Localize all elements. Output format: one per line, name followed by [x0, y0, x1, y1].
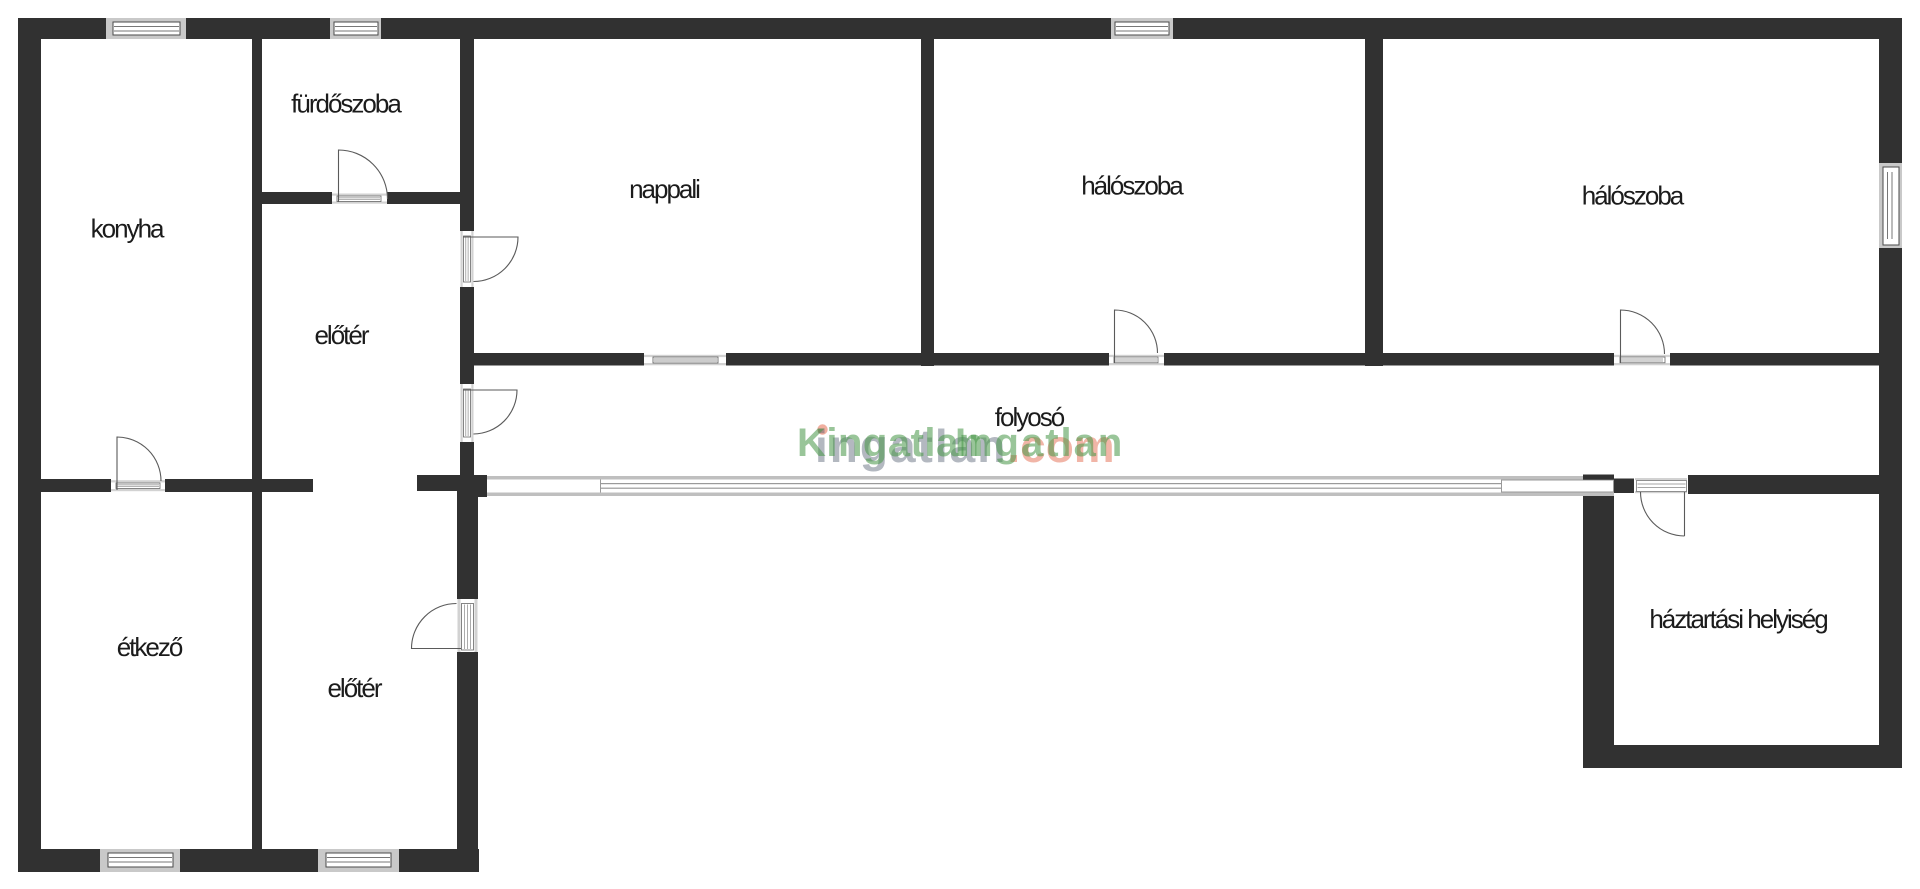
svg-text:előtér: előtér [327, 673, 382, 703]
svg-text:előtér: előtér [314, 320, 369, 350]
svg-text:folyosó: folyosó [995, 402, 1065, 432]
svg-text:háztartási helyiség: háztartási helyiség [1649, 604, 1827, 634]
svg-text:hálószoba: hálószoba [1582, 181, 1685, 211]
svg-text:étkező: étkező [117, 632, 183, 662]
svg-text:fürdőszoba: fürdőszoba [291, 89, 402, 119]
svg-text:konyha: konyha [91, 214, 165, 244]
svg-text:hálószoba: hálószoba [1081, 171, 1184, 201]
svg-text:nappali: nappali [629, 174, 700, 204]
